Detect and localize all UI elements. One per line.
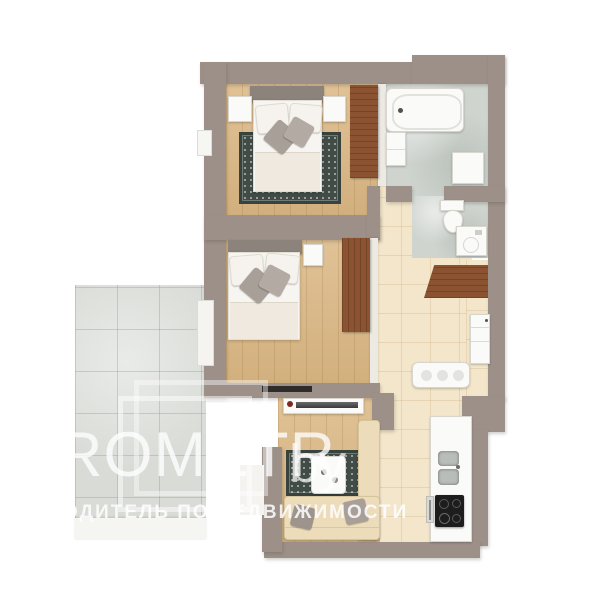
balcony-door-bedroom2 — [197, 300, 214, 366]
tv-screen — [296, 402, 358, 408]
bed-1-blanket — [255, 152, 320, 191]
cooktop — [435, 495, 464, 527]
wall-bedroom1-bathroom — [378, 84, 386, 186]
bathtub — [386, 88, 464, 132]
coffee-table — [311, 456, 346, 494]
window-bedroom1 — [197, 130, 212, 156]
kitchen-sink — [437, 451, 461, 485]
hall-console — [424, 265, 488, 298]
floorplan-image: PROMETR by ПУТЕВОДИТЕЛЬ ПО НЕДВИЖИМОСТИ — [0, 0, 601, 591]
tv-bedroom-2 — [262, 386, 312, 392]
wardrobe-bedroom-2 — [342, 238, 370, 332]
window-living-room — [240, 465, 264, 515]
wall-bedroom2-corridor — [370, 238, 378, 388]
wall-top — [200, 62, 412, 84]
bathroom-vanity — [386, 132, 406, 166]
bed-2-blanket — [230, 302, 298, 339]
wall-kitchen-right — [472, 430, 488, 546]
tv-console-decor — [287, 401, 293, 407]
wall-corridor-left — [367, 186, 380, 240]
sofa-pillow — [342, 498, 369, 525]
oven-front — [426, 496, 434, 523]
wall-living-left — [262, 447, 282, 552]
washing-machine — [456, 226, 487, 256]
wardrobe-bedroom-1 — [350, 85, 378, 178]
balcony-sill — [75, 518, 206, 540]
nightstand — [228, 96, 252, 122]
wall-between-bedrooms — [204, 215, 380, 240]
bathroom-cabinet — [452, 152, 484, 184]
nightstand — [323, 96, 346, 122]
bathtub-drain — [398, 108, 403, 113]
hall-table — [412, 362, 470, 388]
wall-bottom — [264, 542, 480, 558]
nightstand — [303, 244, 323, 266]
balcony-floor — [75, 285, 206, 540]
wall-right-outer — [488, 55, 505, 400]
hall-cabinet-tall — [470, 314, 490, 364]
wall-bath-left-segment — [386, 186, 412, 202]
